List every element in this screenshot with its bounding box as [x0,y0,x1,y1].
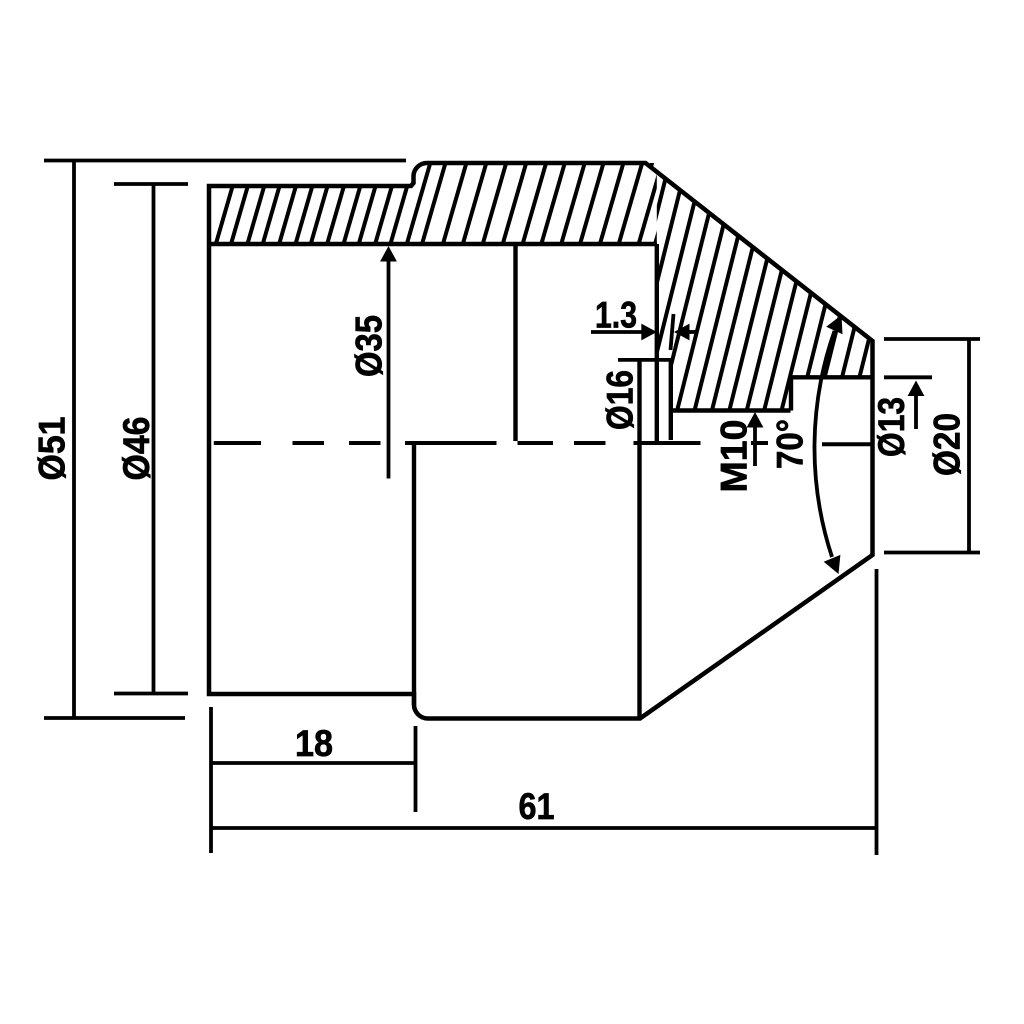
svg-text:Ø16: Ø16 [600,370,641,430]
svg-text:Ø51: Ø51 [32,417,73,481]
svg-text:70°: 70° [770,419,811,469]
svg-text:1.3: 1.3 [595,295,637,336]
svg-text:18: 18 [295,723,333,764]
svg-text:Ø46: Ø46 [116,417,157,481]
svg-text:Ø13: Ø13 [871,397,912,457]
svg-text:M10: M10 [714,420,755,493]
svg-text:Ø20: Ø20 [927,413,968,476]
svg-text:61: 61 [519,786,555,827]
svg-text:Ø35: Ø35 [349,315,390,377]
